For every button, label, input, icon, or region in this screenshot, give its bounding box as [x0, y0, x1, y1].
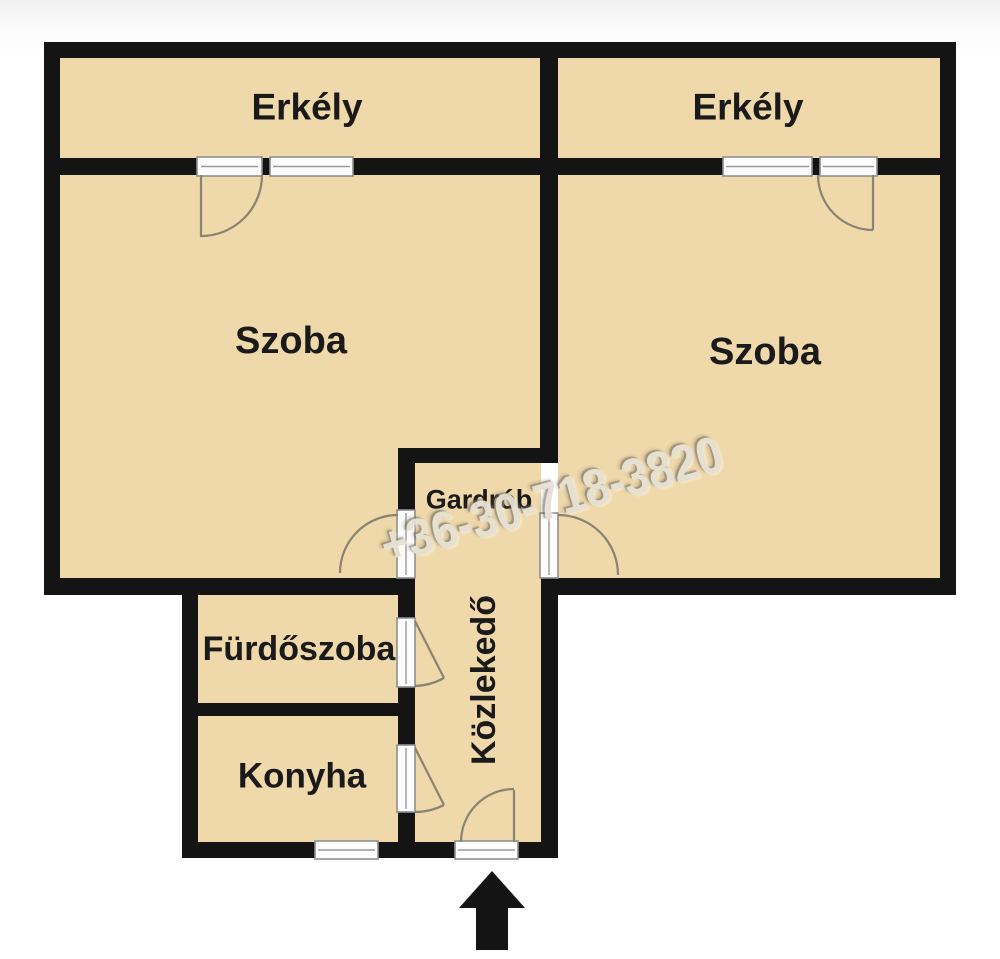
bathroom-label: Fürdőszoba: [203, 632, 396, 666]
wall-room-right-bottom: [541, 578, 956, 595]
hallway-label: Közlekedő: [467, 595, 501, 765]
kitchen-label: Konyha: [238, 759, 366, 794]
balcony-left-label: Erkély: [251, 89, 362, 126]
floor-plan-drawing: [0, 0, 1000, 959]
wall-middle: [540, 42, 558, 463]
wall-outer-left: [44, 42, 60, 595]
room-left-label: Szoba: [235, 322, 347, 360]
entrance-arrow-icon: [459, 871, 525, 950]
wall-room-left-bottom: [44, 578, 415, 595]
wall-block-left: [182, 578, 198, 858]
room-right-label: Szoba: [709, 333, 821, 371]
wall-wardrobe-top: [398, 448, 558, 463]
room-right: [558, 175, 940, 578]
wall-outer-top: [44, 42, 956, 58]
balcony-right-label: Erkély: [692, 89, 803, 126]
wall-bath-kitchen: [198, 703, 415, 716]
wall-hallway-right: [541, 578, 558, 858]
floor-plan-canvas: Erkély Erkély Szoba Szoba Gardrób Közlek…: [0, 0, 1000, 959]
wall-outer-right: [940, 42, 956, 595]
